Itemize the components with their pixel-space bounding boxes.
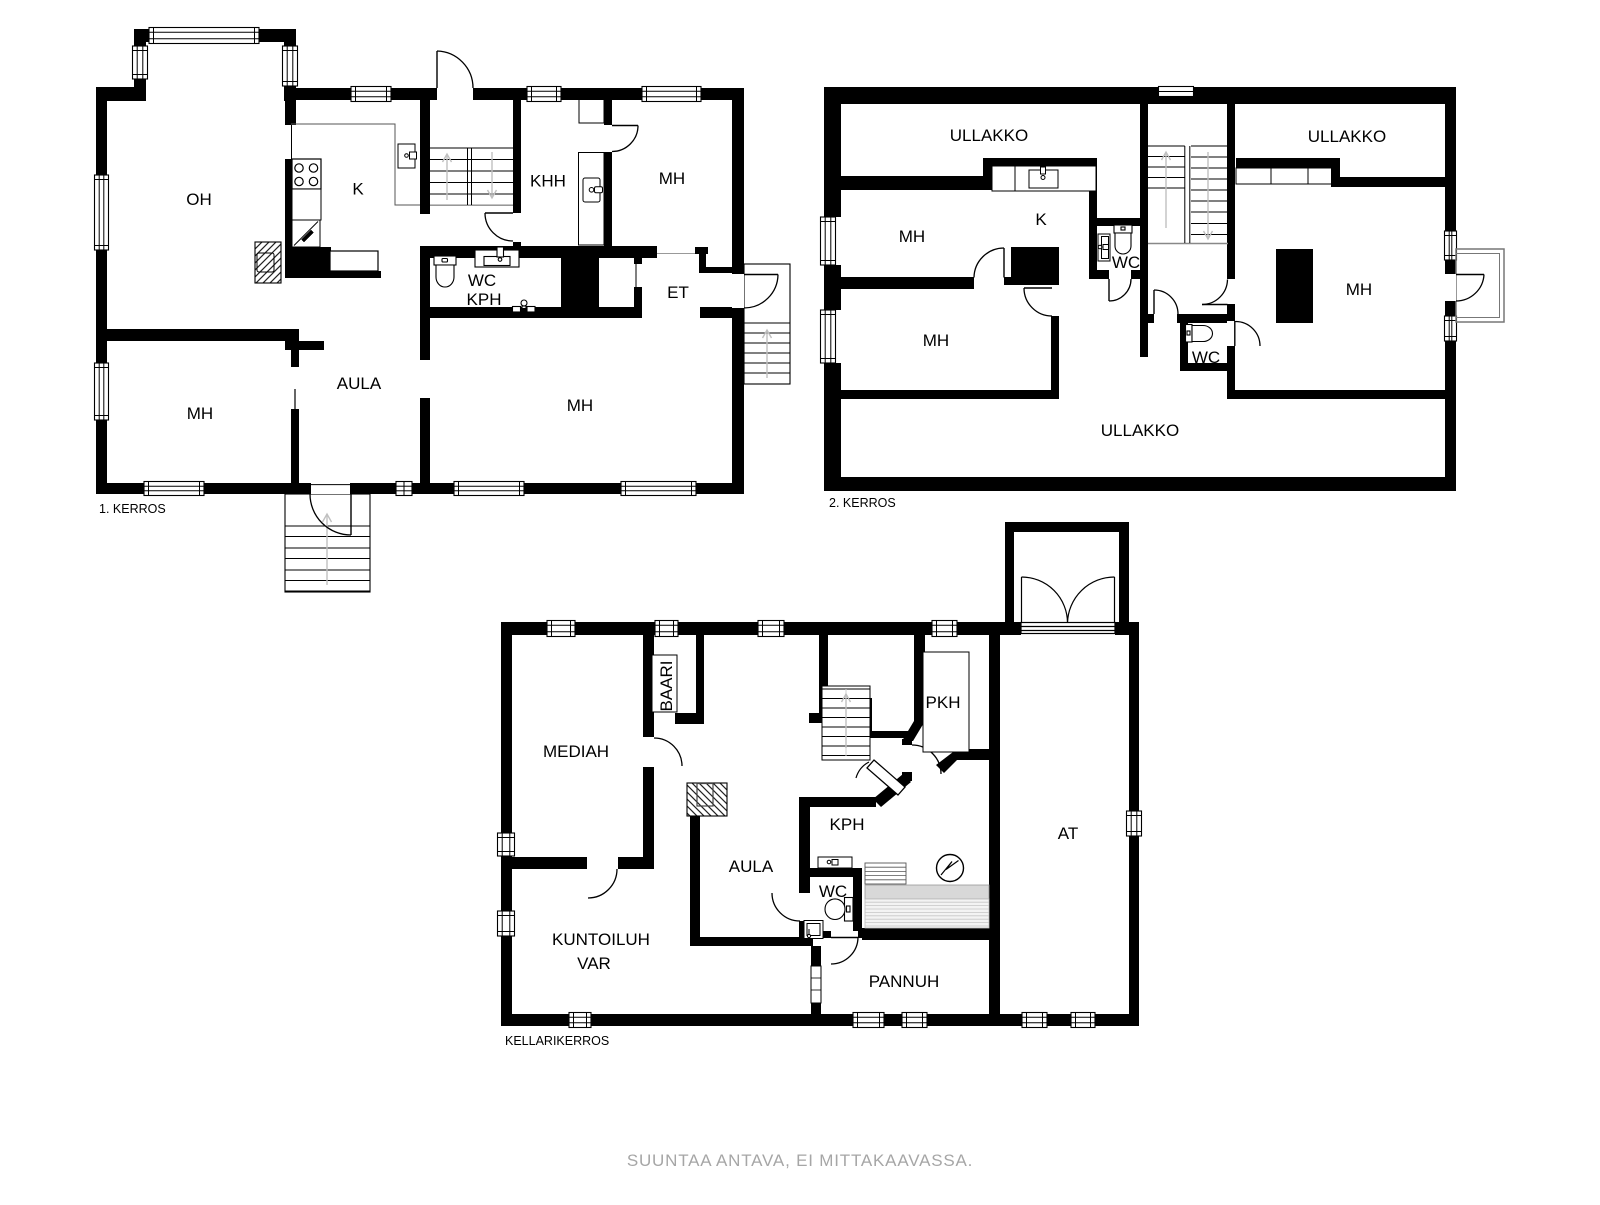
- svg-text:KPH: KPH: [830, 815, 865, 834]
- svg-text:MEDIAH: MEDIAH: [543, 742, 609, 761]
- svg-text:2. KERROS: 2. KERROS: [829, 496, 896, 510]
- svg-text:WC: WC: [1112, 253, 1140, 272]
- svg-text:ET: ET: [667, 283, 689, 302]
- svg-text:PANNUH: PANNUH: [869, 972, 940, 991]
- svg-text:K: K: [1035, 210, 1047, 229]
- svg-text:MH: MH: [567, 396, 593, 415]
- svg-text:WC: WC: [819, 882, 847, 901]
- svg-text:BAARI: BAARI: [657, 660, 676, 711]
- svg-text:SUUNTAA ANTAVA, EI MITTAKAAVAS: SUUNTAA ANTAVA, EI MITTAKAAVASSA.: [627, 1151, 973, 1170]
- svg-text:ULLAKKO: ULLAKKO: [1101, 421, 1179, 440]
- svg-text:AULA: AULA: [729, 857, 774, 876]
- svg-text:ULLAKKO: ULLAKKO: [1308, 127, 1386, 146]
- svg-text:MH: MH: [1346, 280, 1372, 299]
- svg-text:WC: WC: [468, 271, 496, 290]
- svg-text:K: K: [352, 180, 364, 199]
- svg-text:MH: MH: [899, 227, 925, 246]
- svg-text:KUNTOILUH: KUNTOILUH: [552, 930, 650, 949]
- svg-text:AT: AT: [1058, 824, 1078, 843]
- svg-text:WC: WC: [1192, 348, 1220, 367]
- svg-text:1. KERROS: 1. KERROS: [99, 502, 166, 516]
- svg-text:PKH: PKH: [926, 693, 961, 712]
- svg-text:AULA: AULA: [337, 374, 382, 393]
- svg-text:MH: MH: [923, 331, 949, 350]
- svg-text:OH: OH: [186, 190, 212, 209]
- svg-text:KHH: KHH: [530, 172, 566, 191]
- svg-text:MH: MH: [187, 404, 213, 423]
- svg-text:KPH: KPH: [467, 290, 502, 309]
- svg-text:MH: MH: [659, 169, 685, 188]
- svg-text:VAR: VAR: [577, 954, 611, 973]
- svg-text:ULLAKKO: ULLAKKO: [950, 126, 1028, 145]
- svg-text:KELLARIKERROS: KELLARIKERROS: [505, 1034, 609, 1048]
